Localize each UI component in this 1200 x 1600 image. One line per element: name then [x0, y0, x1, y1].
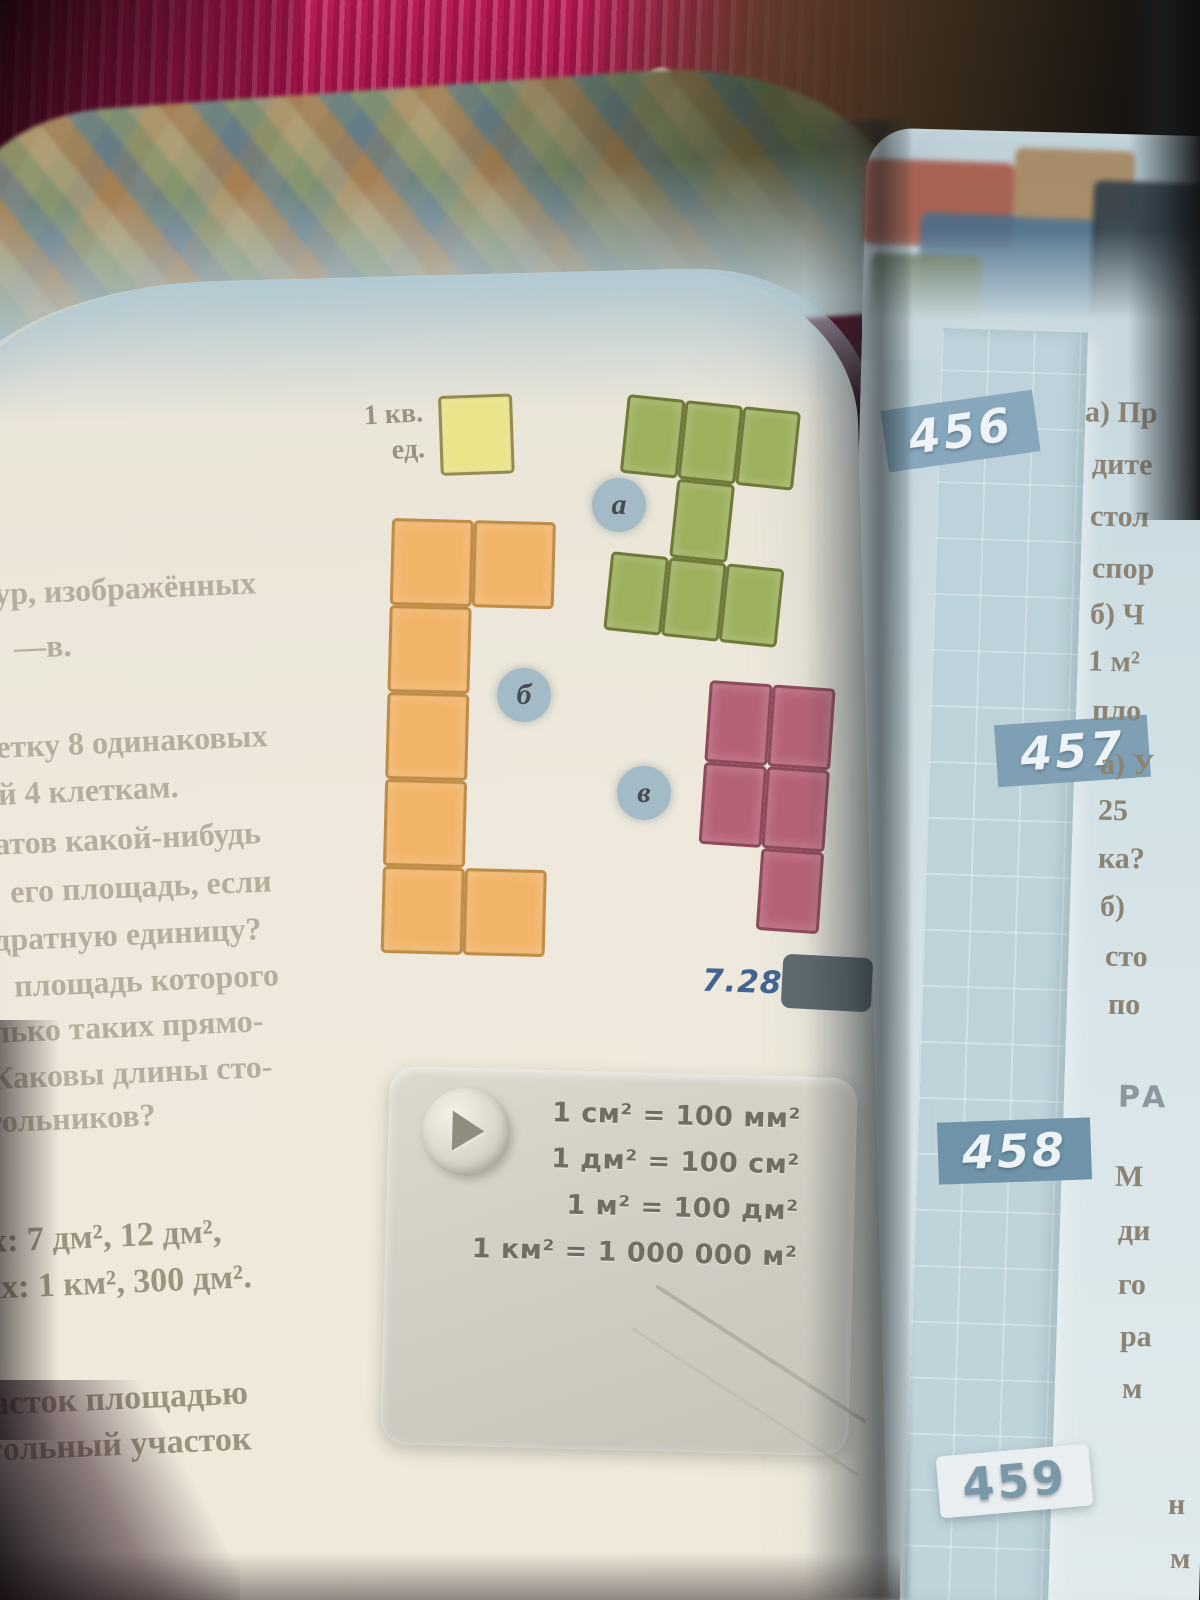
page-edge-shadow-block — [781, 954, 874, 1013]
unit-square-cell — [381, 866, 465, 955]
figure-reference-number: 7.28 — [701, 963, 783, 1002]
textbook-text-fragment: н — [1168, 1488, 1186, 1522]
textbook-text-fragment: ка? — [1098, 842, 1145, 877]
unit-square-cell — [719, 563, 785, 648]
textbook-text-fragment: сто — [1105, 940, 1148, 975]
unit-square-cell — [620, 394, 686, 479]
unit-square-cell — [438, 393, 515, 476]
unit-square-caption: 1 кв. ед. — [316, 395, 426, 472]
formula-line: 1 км² = 1 000 000 м² — [471, 1226, 798, 1281]
formula-lines: 1 см² = 100 мм² 1 дм² = 100 см² 1 м² = 1… — [471, 1088, 801, 1280]
unit-square-cell — [463, 868, 547, 957]
unit-caption-line2: ед. — [318, 431, 426, 472]
textbook-text-fragment: 1 м² — [1088, 645, 1141, 680]
textbook-text-fragment: й 4 клеткам. — [0, 768, 179, 813]
figure-label-b: б — [497, 668, 551, 722]
figure-label-a: а — [592, 478, 646, 532]
textbook-text-fragment: дите — [1092, 447, 1153, 482]
figure-label-v: в — [617, 766, 671, 820]
unit-caption-line1: 1 кв. — [316, 395, 424, 436]
unit-square-cell — [383, 779, 467, 868]
textbook-text-fragment: б) — [1100, 890, 1126, 924]
unit-square-cell — [677, 400, 743, 485]
textbook-text-fragment: ра — [1120, 1320, 1152, 1355]
photo-of-open-textbook: 456 457 458 459 а) Пр дите стол спор б) … — [0, 0, 1200, 1600]
textbook-text-fragment: м — [1122, 1372, 1143, 1406]
textbook-text-fragment: а) Пр — [1085, 395, 1158, 430]
textbook-text-fragment: ди — [1118, 1214, 1151, 1249]
textbook-text-fragment: м — [1170, 1542, 1191, 1576]
unit-square-cell — [385, 692, 469, 781]
textbook-text-fragment: стол — [1090, 499, 1150, 534]
unit-square-cell — [390, 518, 474, 607]
unit-square-cell — [767, 684, 836, 770]
unit-square-cell — [387, 605, 471, 694]
unit-square-cell — [669, 479, 735, 564]
textbook-text-fragment: гольников? — [0, 1096, 156, 1140]
unit-square-cell — [704, 680, 773, 766]
textbook-text-fragment: —в. — [13, 627, 72, 666]
textbook-text-fragment: по — [1108, 988, 1141, 1023]
textbook-text-fragment: а) У — [1100, 748, 1155, 783]
textbook-text-fragment: б) Ч — [1090, 598, 1145, 633]
unit-square-cell — [661, 557, 727, 642]
textbook-text-fragment: го — [1118, 1268, 1146, 1302]
unit-square-cell — [603, 551, 669, 636]
problem-number-badge-459: 459 — [936, 1443, 1094, 1518]
section-heading-fragment: РА — [1118, 1080, 1168, 1116]
textbook-text-fragment: пло — [1092, 694, 1142, 729]
unit-square-cell — [761, 766, 830, 852]
textbook-text-fragment: 25 — [1098, 794, 1129, 829]
textbook-text-fragment: спор — [1092, 551, 1155, 586]
problem-number-badge-458: 458 — [937, 1117, 1092, 1184]
unit-square-cell — [735, 406, 801, 491]
unit-square-cell — [472, 520, 556, 609]
unit-square-cell — [699, 762, 768, 848]
unit-conversion-formula-box: 1 см² = 100 мм² 1 дм² = 100 см² 1 м² = 1… — [380, 1066, 858, 1456]
unit-square-cell — [756, 848, 825, 934]
textbook-text-fragment: М — [1115, 1160, 1144, 1194]
